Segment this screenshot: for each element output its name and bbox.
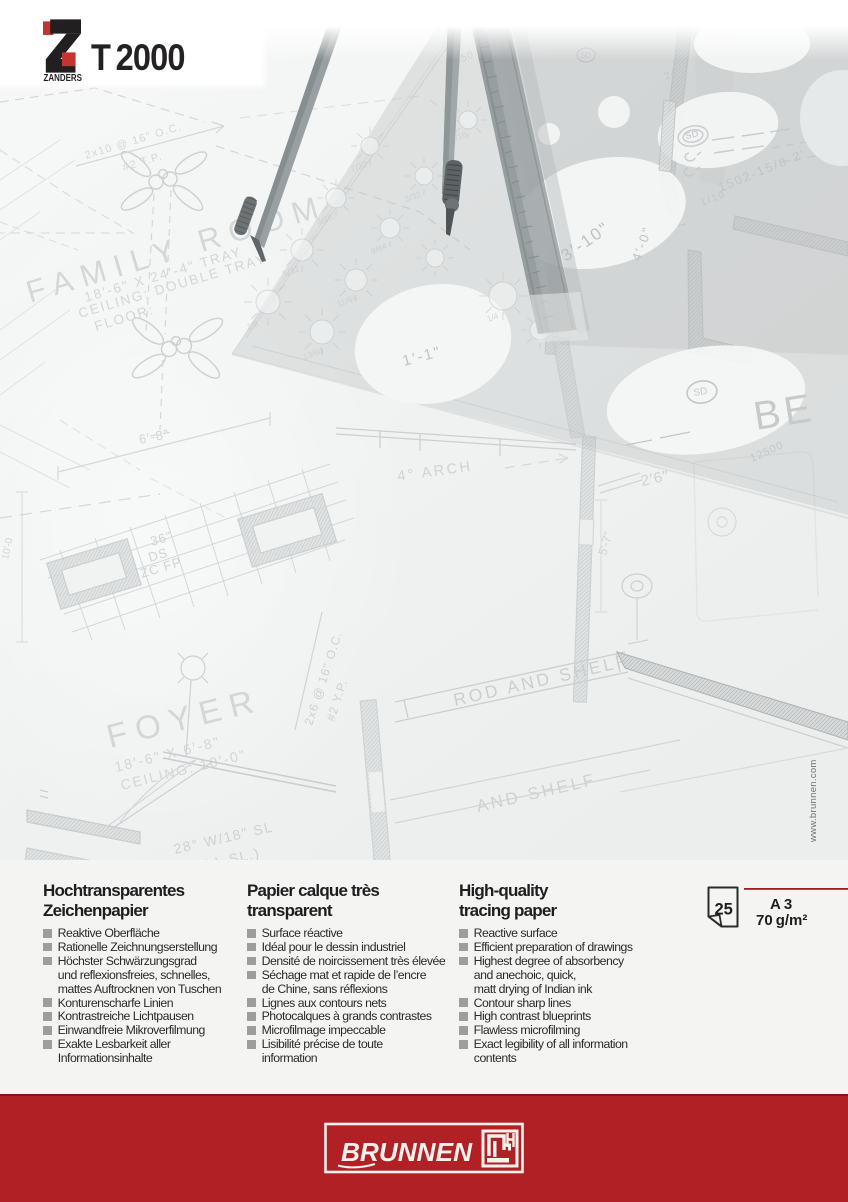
svg-text:25: 25 [715,901,733,919]
svg-text:70 g/m²: 70 g/m² [756,912,807,929]
svg-text:www.brunnen.com: www.brunnen.com [808,759,819,843]
svg-text:ZANDERS: ZANDERS [44,72,83,84]
svg-text:A 3: A 3 [770,896,792,913]
svg-text:BRUNNEN: BRUNNEN [341,1137,473,1167]
